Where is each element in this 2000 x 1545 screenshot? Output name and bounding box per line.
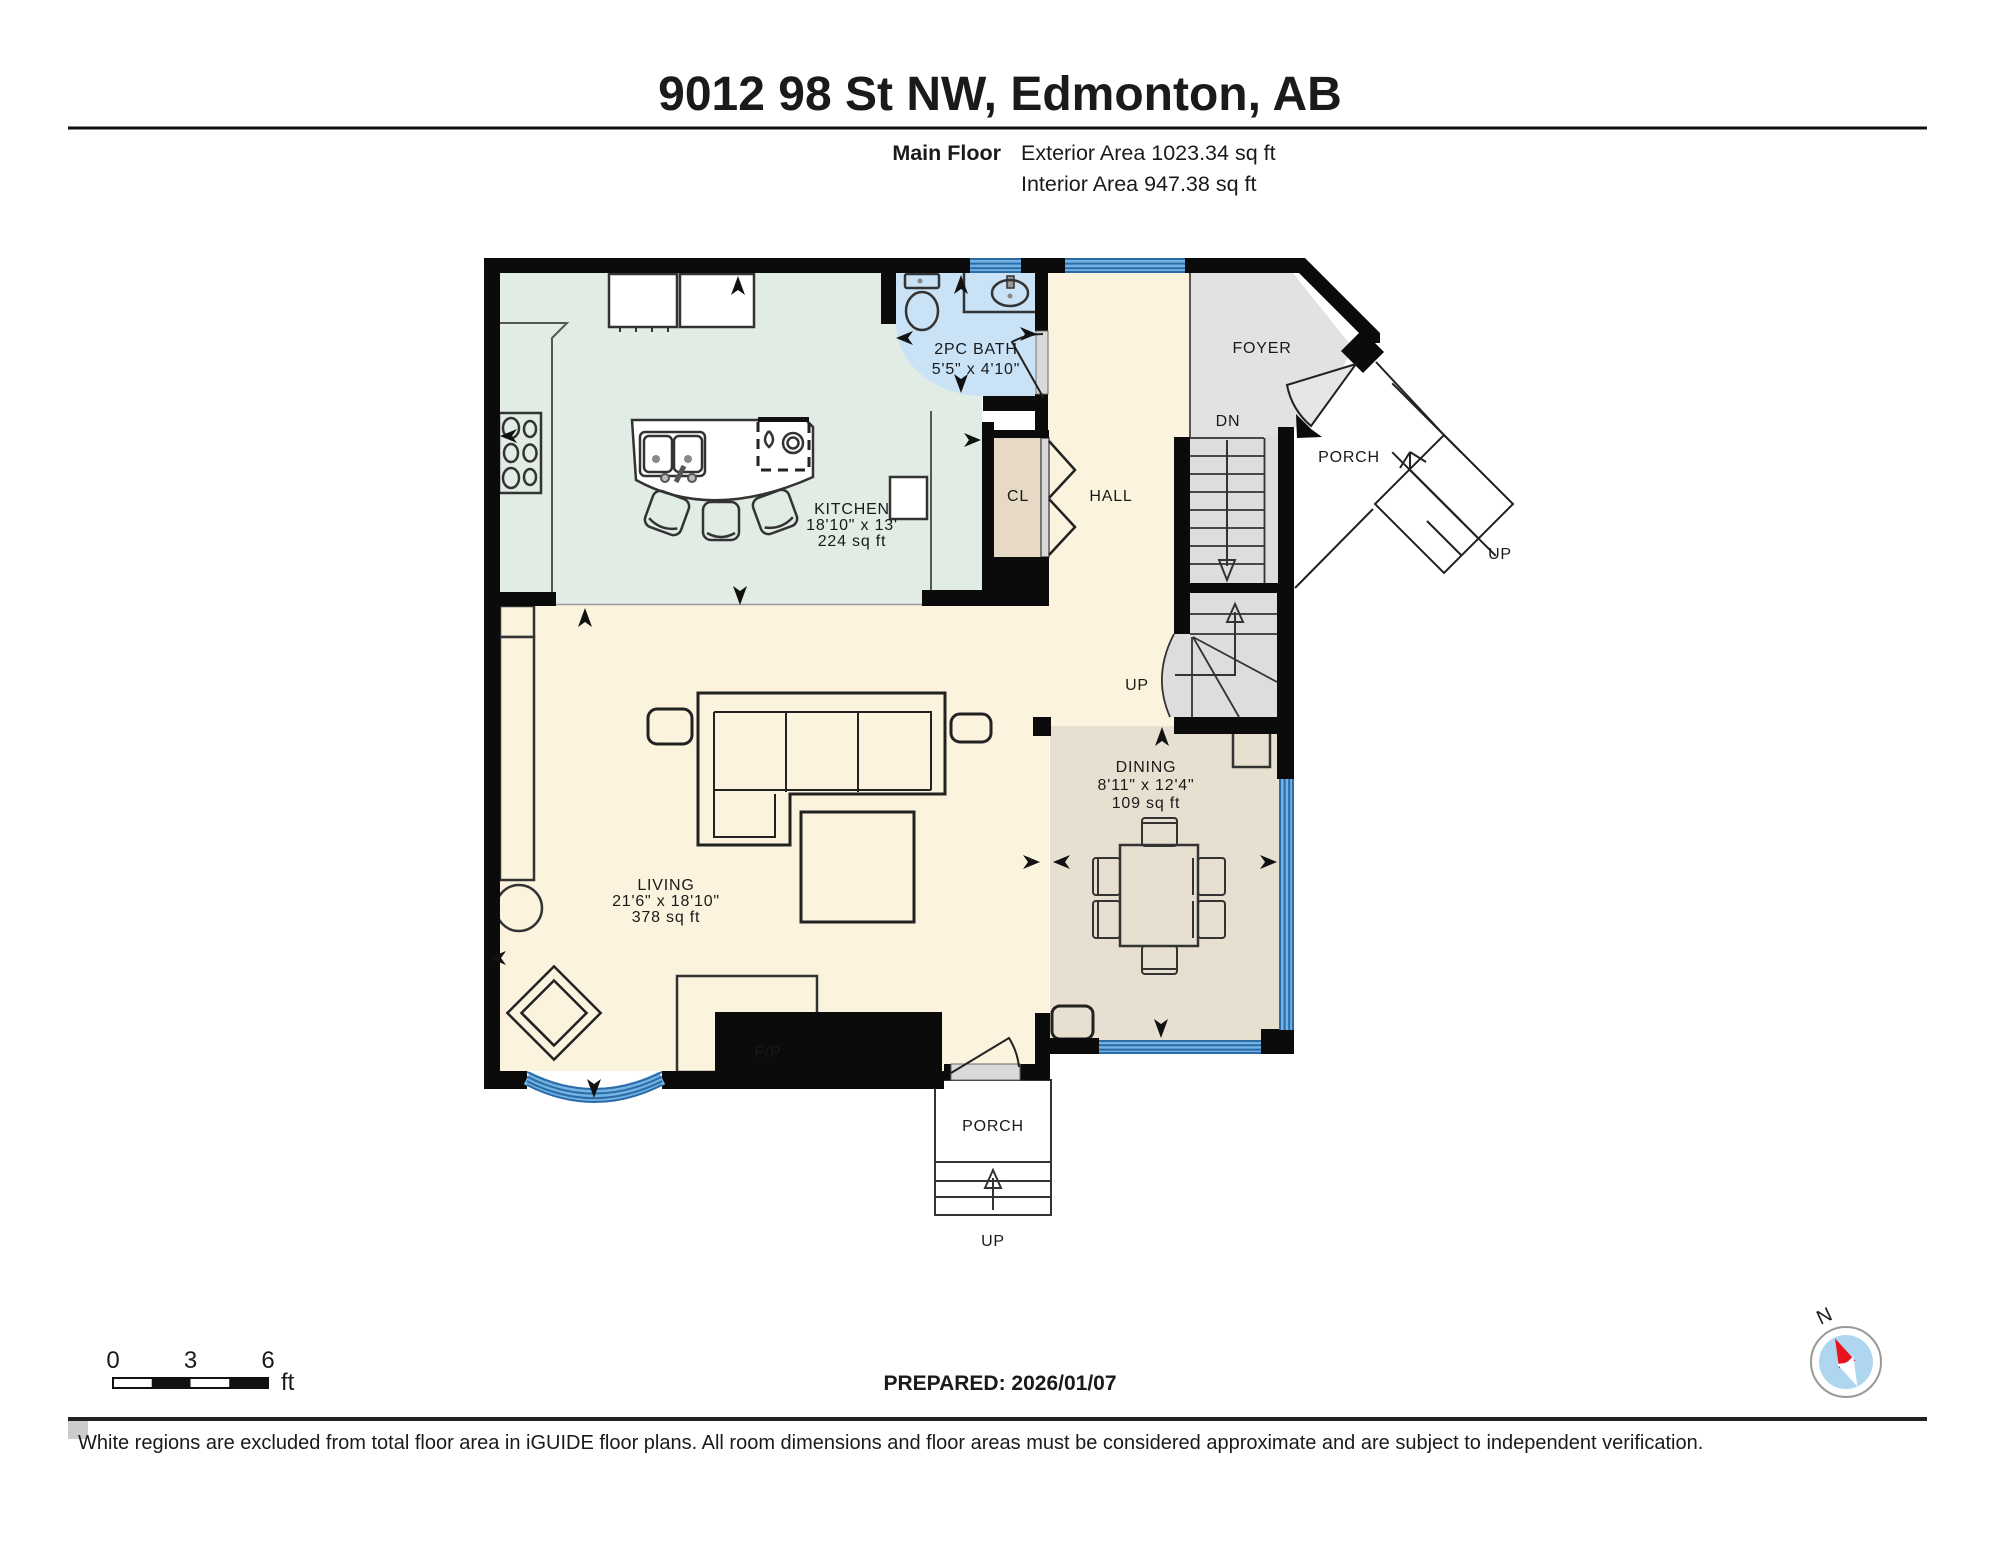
svg-text:Main Floor: Main Floor — [892, 141, 1001, 165]
svg-text:UP: UP — [1125, 677, 1149, 694]
svg-text:PREPARED: 2026/01/07: PREPARED: 2026/01/07 — [883, 1372, 1116, 1395]
svg-text:CL: CL — [1007, 488, 1029, 505]
svg-text:378 sq ft: 378 sq ft — [632, 909, 701, 926]
svg-text:6: 6 — [261, 1347, 274, 1374]
svg-text:0: 0 — [106, 1347, 119, 1374]
svg-text:18'10" x 13': 18'10" x 13' — [806, 517, 898, 534]
svg-text:KITCHEN: KITCHEN — [814, 501, 890, 518]
svg-text:2PC BATH: 2PC BATH — [934, 341, 1017, 358]
svg-text:UP: UP — [981, 1233, 1005, 1250]
svg-text:PORCH: PORCH — [1318, 449, 1380, 466]
svg-text:DN: DN — [1216, 413, 1241, 430]
svg-text:White regions are excluded fro: White regions are excluded from total fl… — [78, 1432, 1703, 1454]
svg-text:DINING: DINING — [1116, 759, 1177, 776]
svg-text:224 sq ft: 224 sq ft — [818, 533, 887, 550]
svg-text:3: 3 — [184, 1347, 197, 1374]
svg-text:9012 98 St NW, Edmonton, AB: 9012 98 St NW, Edmonton, AB — [658, 68, 1342, 121]
svg-text:21'6" x 18'10": 21'6" x 18'10" — [612, 893, 720, 910]
svg-text:8'11" x 12'4": 8'11" x 12'4" — [1098, 777, 1195, 794]
svg-text:F/P: F/P — [754, 1044, 781, 1061]
svg-text:FOYER: FOYER — [1232, 340, 1291, 357]
svg-text:5'5" x 4'10": 5'5" x 4'10" — [932, 361, 1020, 378]
svg-text:Interior Area 947.38 sq ft: Interior Area 947.38 sq ft — [1021, 172, 1256, 196]
svg-text:N: N — [1813, 1304, 1835, 1330]
svg-text:ft: ft — [281, 1369, 295, 1396]
svg-text:UP: UP — [1488, 546, 1512, 563]
svg-text:HALL: HALL — [1089, 488, 1132, 505]
svg-text:109 sq ft: 109 sq ft — [1112, 795, 1181, 812]
svg-text:LIVING: LIVING — [637, 877, 694, 894]
svg-text:Exterior Area 1023.34 sq ft: Exterior Area 1023.34 sq ft — [1021, 141, 1276, 165]
svg-text:PORCH: PORCH — [962, 1118, 1024, 1135]
